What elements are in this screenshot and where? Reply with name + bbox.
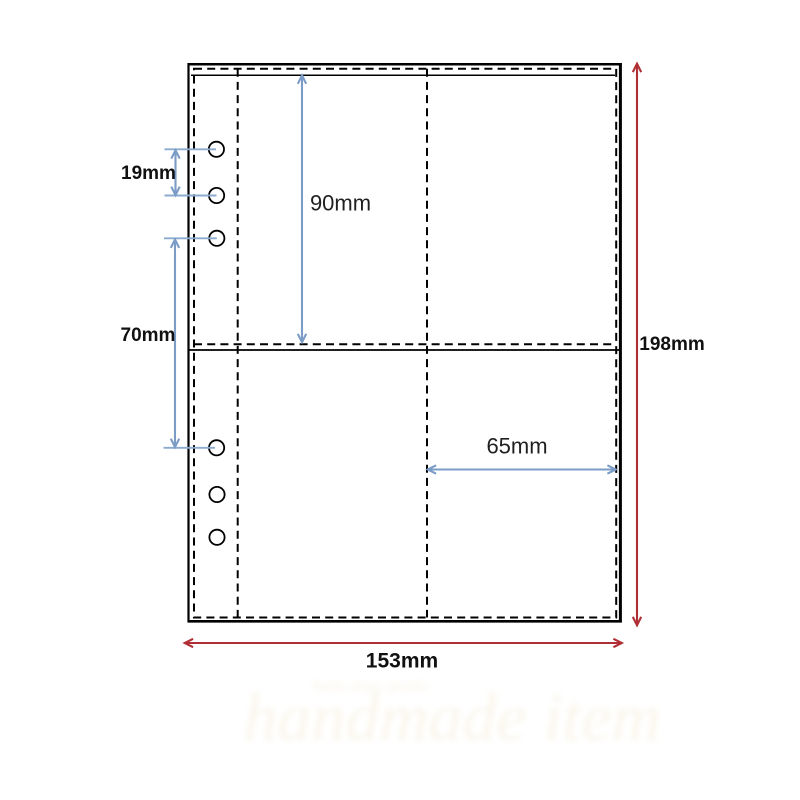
svg-text:198mm: 198mm xyxy=(639,334,705,355)
svg-text:70mm: 70mm xyxy=(121,325,176,346)
svg-text:153mm: 153mm xyxy=(366,650,438,673)
svg-text:handmade item: handmade item xyxy=(243,679,660,755)
svg-text:90mm: 90mm xyxy=(310,191,371,216)
svg-text:65mm: 65mm xyxy=(486,434,547,459)
svg-text:19mm: 19mm xyxy=(121,163,176,184)
